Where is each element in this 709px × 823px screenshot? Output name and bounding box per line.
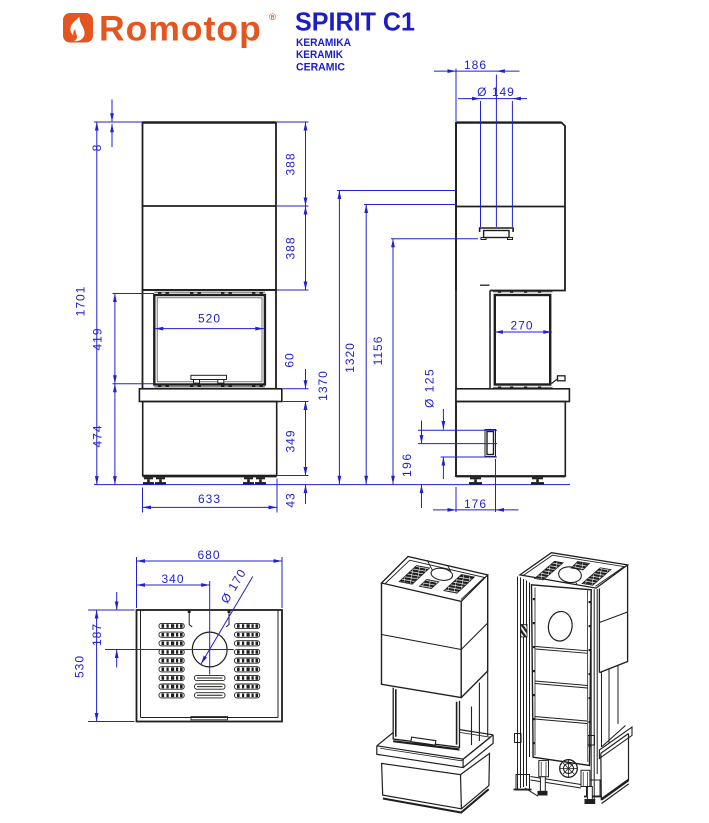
svg-text:474: 474	[91, 424, 105, 447]
svg-text:Ø 125: Ø 125	[423, 368, 437, 408]
svg-text:176: 176	[464, 497, 487, 511]
svg-text:270: 270	[510, 319, 533, 333]
svg-text:419: 419	[91, 327, 105, 350]
svg-text:1156: 1156	[371, 336, 385, 366]
svg-text:388: 388	[284, 236, 298, 259]
svg-text:®: ®	[269, 12, 276, 23]
svg-text:KERAMIKA: KERAMIKA	[296, 37, 351, 49]
svg-text:Ø 149: Ø 149	[477, 85, 515, 99]
svg-text:43: 43	[284, 492, 298, 507]
svg-text:CERAMIC: CERAMIC	[296, 61, 345, 73]
svg-text:8: 8	[90, 144, 104, 152]
svg-text:680: 680	[197, 548, 220, 562]
svg-text:530: 530	[73, 655, 87, 678]
svg-text:KERAMIK: KERAMIK	[296, 49, 343, 61]
svg-text:1320: 1320	[343, 342, 357, 373]
svg-text:60: 60	[283, 352, 297, 367]
svg-text:Romotop: Romotop	[99, 9, 262, 49]
svg-text:633: 633	[198, 492, 221, 506]
svg-text:349: 349	[284, 429, 298, 452]
svg-text:520: 520	[198, 312, 221, 326]
svg-text:SPIRIT C1: SPIRIT C1	[295, 7, 415, 37]
svg-text:388: 388	[284, 152, 298, 175]
svg-text:196: 196	[400, 452, 414, 477]
svg-text:186: 186	[464, 58, 487, 72]
svg-text:1701: 1701	[74, 286, 88, 317]
svg-text:1370: 1370	[316, 370, 330, 401]
svg-text:340: 340	[161, 572, 184, 586]
